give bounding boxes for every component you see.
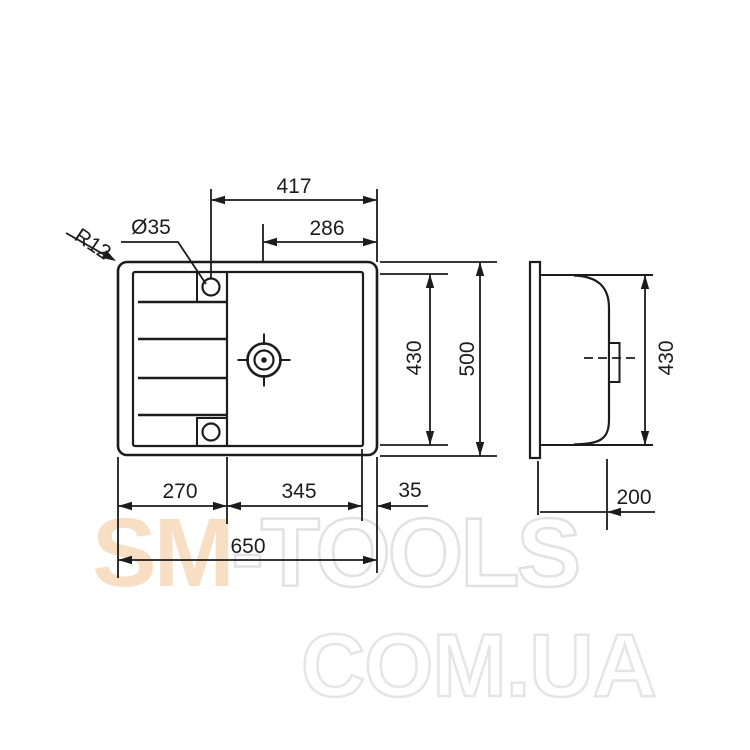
dim-hole-diameter: Ø35 [131, 216, 171, 239]
dim-bowl-depth: 200 [616, 486, 651, 509]
dim-bowl-width: 345 [281, 480, 316, 503]
dim-drainboard-width: 270 [162, 480, 197, 503]
sink-technical-drawing: SM-TOOLS COM.UA [0, 0, 750, 750]
side-view [530, 262, 653, 458]
bowl-profile [574, 276, 609, 445]
dim-overall-width: 650 [230, 535, 265, 558]
dim-side-height: 430 [655, 340, 678, 375]
drain-fitting [609, 343, 620, 382]
dim-inner-depth: 430 [403, 340, 426, 375]
dimension-drawing: 417 286 Ø35 R12 430 500 270 345 35 650 4… [0, 0, 750, 750]
dim-outer-depth: 500 [456, 341, 479, 376]
dim-drain-offset: 286 [309, 217, 344, 240]
rim-flange [530, 262, 540, 458]
dim-top-width: 417 [276, 175, 311, 198]
top-view [118, 262, 377, 455]
dim-right-margin: 35 [398, 479, 421, 502]
